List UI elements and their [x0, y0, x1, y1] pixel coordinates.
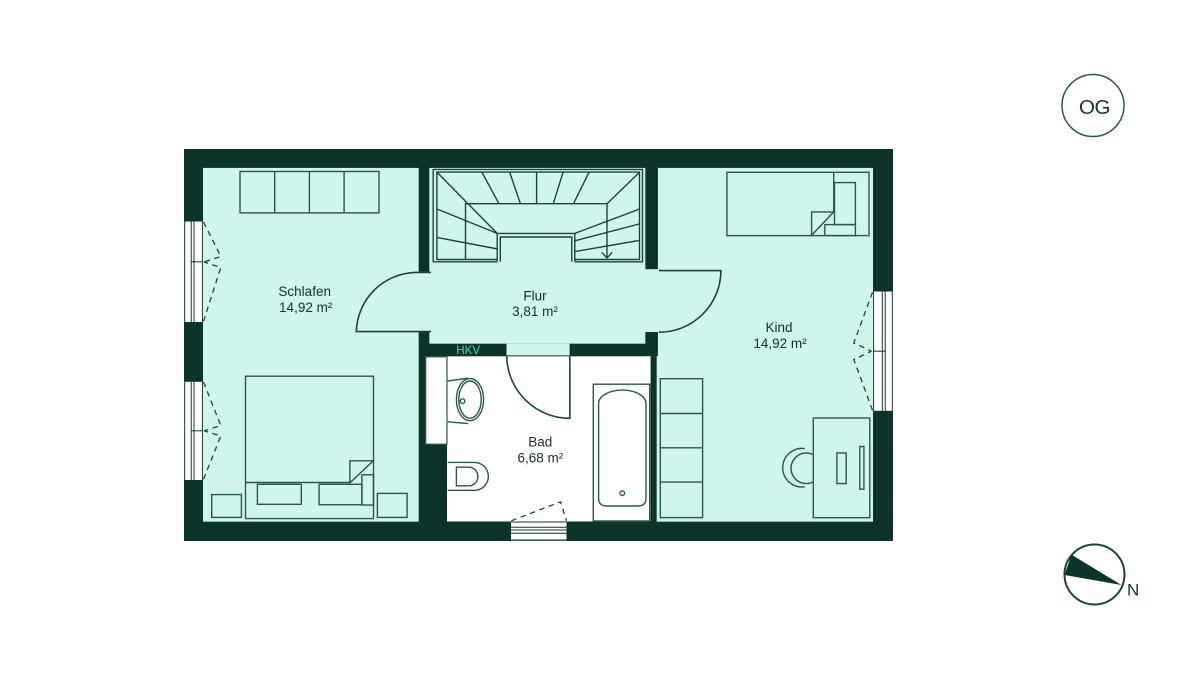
svg-text:14,92 m²: 14,92 m²	[753, 336, 807, 351]
svg-text:6,68 m²: 6,68 m²	[518, 450, 564, 465]
svg-text:HKV: HKV	[456, 344, 480, 357]
svg-text:3,81 m²: 3,81 m²	[512, 304, 558, 319]
svg-text:Flur: Flur	[523, 288, 547, 303]
svg-text:N: N	[1127, 581, 1139, 600]
svg-text:OG: OG	[1079, 96, 1110, 119]
svg-text:Bad: Bad	[528, 435, 552, 450]
svg-text:Kind: Kind	[765, 320, 792, 335]
svg-text:Schlafen: Schlafen	[278, 284, 331, 299]
svg-text:14,92 m²: 14,92 m²	[279, 300, 333, 315]
